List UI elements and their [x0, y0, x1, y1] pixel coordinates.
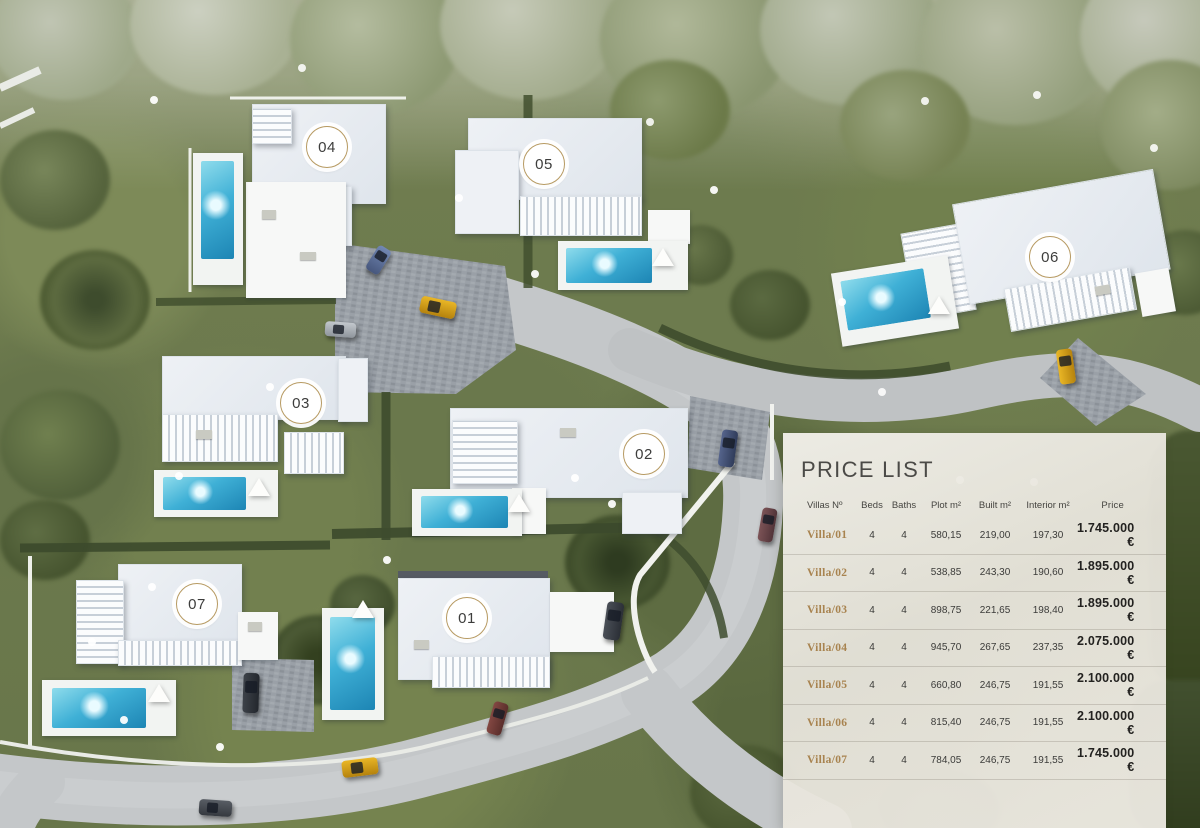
car-suv-villa07 — [242, 673, 259, 714]
row-plot: 580,15 — [921, 530, 971, 541]
price-table-row: Villa/02 4 4 538,85 243,30 190,60 1.895.… — [783, 555, 1166, 593]
row-villa-name: Villa/02 — [793, 567, 857, 579]
row-plot: 784,05 — [921, 755, 971, 766]
row-interior: 198,40 — [1019, 605, 1077, 616]
car-gray-southwest — [198, 799, 232, 817]
price-list-panel: PRICE LIST Villas Nº Beds Baths Plot m² … — [783, 433, 1166, 828]
column-header-plot: Plot m² — [921, 500, 971, 511]
row-price: 2.075.000 € — [1077, 634, 1156, 662]
column-header-baths: Baths — [887, 500, 921, 511]
price-list-title: PRICE LIST — [801, 457, 1166, 483]
row-interior: 191,55 — [1019, 680, 1077, 691]
row-price: 1.745.000 € — [1077, 746, 1156, 774]
row-beds: 4 — [857, 605, 887, 616]
row-interior: 191,55 — [1019, 717, 1077, 728]
row-plot: 898,75 — [921, 605, 971, 616]
row-baths: 4 — [887, 530, 921, 541]
price-table-row: Villa/03 4 4 898,75 221,65 198,40 1.895.… — [783, 592, 1166, 630]
row-villa-name: Villa/04 — [793, 642, 857, 654]
row-interior: 197,30 — [1019, 530, 1077, 541]
price-table-row: Villa/05 4 4 660,80 246,75 191,55 2.100.… — [783, 667, 1166, 705]
villa-badge-05: 05 — [523, 143, 565, 185]
row-baths: 4 — [887, 567, 921, 578]
villa-badge-04: 04 — [306, 126, 348, 168]
row-beds: 4 — [857, 717, 887, 728]
row-baths: 4 — [887, 605, 921, 616]
villa-04-pool — [193, 153, 243, 285]
row-built: 243,30 — [971, 567, 1019, 578]
row-built: 246,75 — [971, 755, 1019, 766]
villa-badge-07: 07 — [176, 583, 218, 625]
price-table-row: Villa/01 4 4 580,15 219,00 197,30 1.745.… — [783, 517, 1166, 555]
row-built: 221,65 — [971, 605, 1019, 616]
row-villa-name: Villa/03 — [793, 604, 857, 616]
row-built: 267,65 — [971, 642, 1019, 653]
row-plot: 538,85 — [921, 567, 971, 578]
parasol — [352, 600, 374, 618]
villa-badge-03: 03 — [280, 382, 322, 424]
row-plot: 660,80 — [921, 680, 971, 691]
row-built: 246,75 — [971, 717, 1019, 728]
row-price: 1.895.000 € — [1077, 559, 1156, 587]
row-baths: 4 — [887, 755, 921, 766]
column-header-price: Price — [1077, 500, 1154, 511]
row-beds: 4 — [857, 642, 887, 653]
row-villa-name: Villa/01 — [793, 529, 857, 541]
row-baths: 4 — [887, 642, 921, 653]
price-table-row: Villa/06 4 4 815,40 246,75 191,55 2.100.… — [783, 705, 1166, 743]
villa-badge-02: 02 — [623, 433, 665, 475]
row-villa-name: Villa/07 — [793, 754, 857, 766]
garden-lights — [0, 0, 4, 4]
row-villa-name: Villa/05 — [793, 679, 857, 691]
parasol — [248, 478, 270, 496]
row-beds: 4 — [857, 567, 887, 578]
price-table-row: Villa/07 4 4 784,05 246,75 191,55 1.745.… — [783, 742, 1166, 780]
row-villa-name: Villa/06 — [793, 717, 857, 729]
column-header-villas: Villas Nº — [793, 500, 857, 511]
car-gray — [325, 321, 357, 338]
row-built: 246,75 — [971, 680, 1019, 691]
row-price: 1.745.000 € — [1077, 521, 1156, 549]
site-plan-page: 04 05 06 03 02 07 01 PRICE LIST Villas N… — [0, 0, 1200, 828]
row-built: 219,00 — [971, 530, 1019, 541]
row-plot: 945,70 — [921, 642, 971, 653]
row-interior: 190,60 — [1019, 567, 1077, 578]
row-plot: 815,40 — [921, 717, 971, 728]
villa-02-pool — [412, 489, 522, 536]
row-price: 1.895.000 € — [1077, 596, 1156, 624]
parasol — [928, 296, 950, 314]
parasol — [508, 494, 530, 512]
column-header-interior: Interior m² — [1019, 500, 1077, 511]
row-beds: 4 — [857, 680, 887, 691]
row-price: 2.100.000 € — [1077, 709, 1156, 737]
row-baths: 4 — [887, 717, 921, 728]
row-beds: 4 — [857, 530, 887, 541]
price-table-header: Villas Nº Beds Baths Plot m² Built m² In… — [783, 493, 1166, 517]
parasol — [652, 248, 674, 266]
column-header-built: Built m² — [971, 500, 1019, 511]
parasol — [148, 684, 170, 702]
column-header-beds: Beds — [857, 500, 887, 511]
row-beds: 4 — [857, 755, 887, 766]
row-interior: 237,35 — [1019, 642, 1077, 653]
villa-badge-06: 06 — [1029, 236, 1071, 278]
price-table-row: Villa/04 4 4 945,70 267,65 237,35 2.075.… — [783, 630, 1166, 668]
row-price: 2.100.000 € — [1077, 671, 1156, 699]
villa-01-pool — [322, 608, 384, 720]
row-baths: 4 — [887, 680, 921, 691]
row-interior: 191,55 — [1019, 755, 1077, 766]
villa-badge-01: 01 — [446, 597, 488, 639]
